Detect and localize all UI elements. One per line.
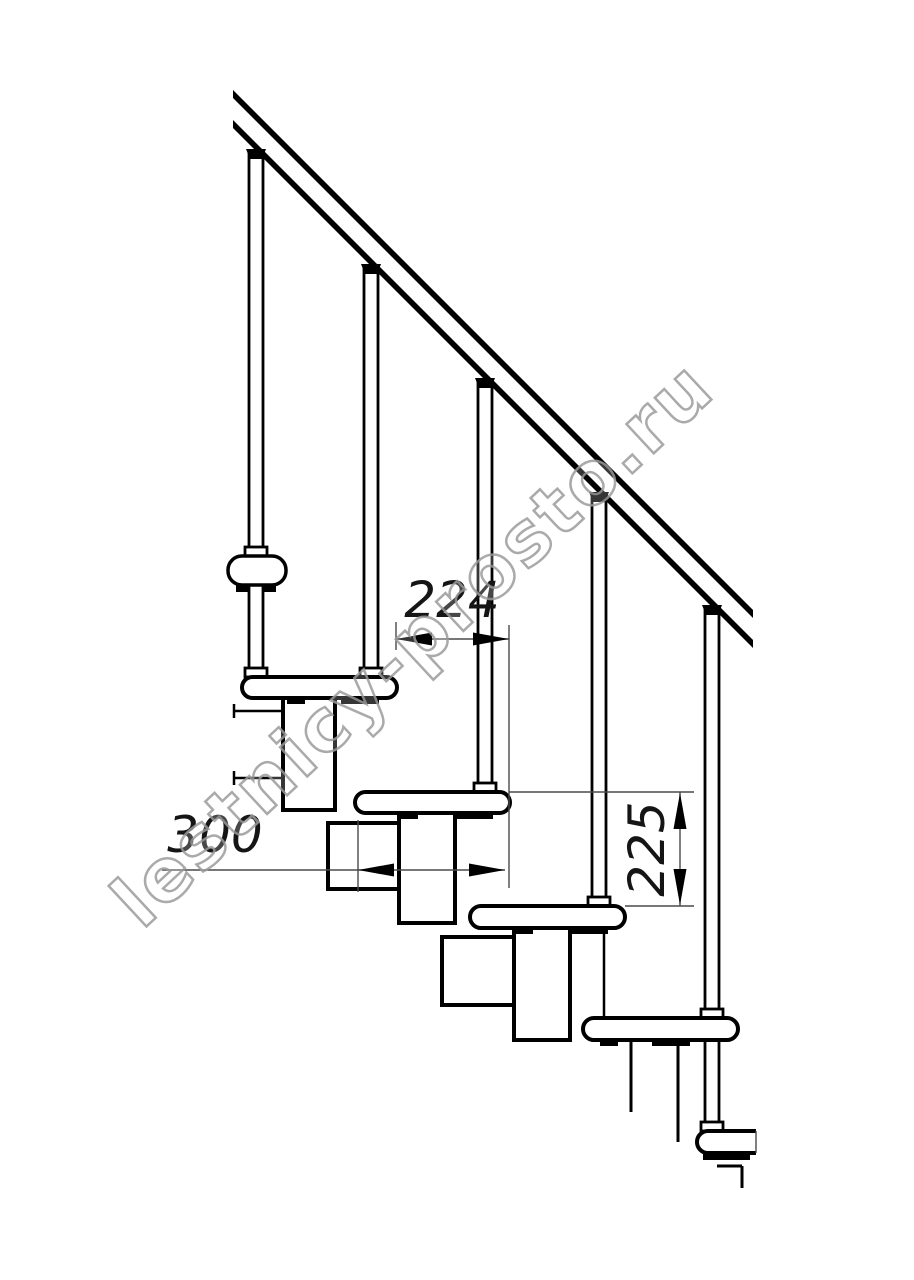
baluster-4-post	[592, 494, 606, 906]
tread-2-mount-b	[455, 811, 493, 819]
dim-300-arrow-right	[469, 864, 505, 877]
joint-module-2	[442, 937, 517, 1005]
baluster-1	[228, 149, 286, 677]
baluster-4	[588, 492, 610, 906]
tread-2	[355, 792, 510, 813]
staircase-drawing: 224 300 225 lestnicy-prosto.ru	[0, 0, 914, 1280]
block-mount-right	[263, 585, 276, 592]
vertical-module-2	[399, 813, 455, 923]
tread-2-mount-a	[400, 811, 418, 819]
adjacent-flight-tread-end	[228, 556, 286, 585]
tread-5-mount	[703, 1151, 750, 1160]
tread-3-mount-b	[570, 926, 608, 934]
tread-4	[583, 1018, 738, 1040]
baluster-5-post	[705, 607, 719, 1018]
tread-4-mount-b	[652, 1038, 690, 1046]
baluster-5	[701, 605, 723, 1131]
baluster-2-post	[364, 266, 378, 677]
tread-3	[470, 906, 625, 928]
tread-5-cut	[697, 1131, 756, 1153]
tread-4-mount-a	[600, 1038, 618, 1046]
block-mount-left	[236, 585, 249, 592]
baluster-1-post	[249, 151, 263, 677]
vertical-module-3	[514, 928, 570, 1040]
tread-3-mount-a	[515, 926, 533, 934]
dim-225-label: 225	[618, 801, 676, 896]
baluster-2	[360, 264, 382, 677]
baluster-5-lower-post	[705, 1040, 719, 1123]
joint-module-1	[328, 823, 403, 889]
drawing-canvas: 224 300 225 lestnicy-prosto.ru	[0, 0, 914, 1280]
